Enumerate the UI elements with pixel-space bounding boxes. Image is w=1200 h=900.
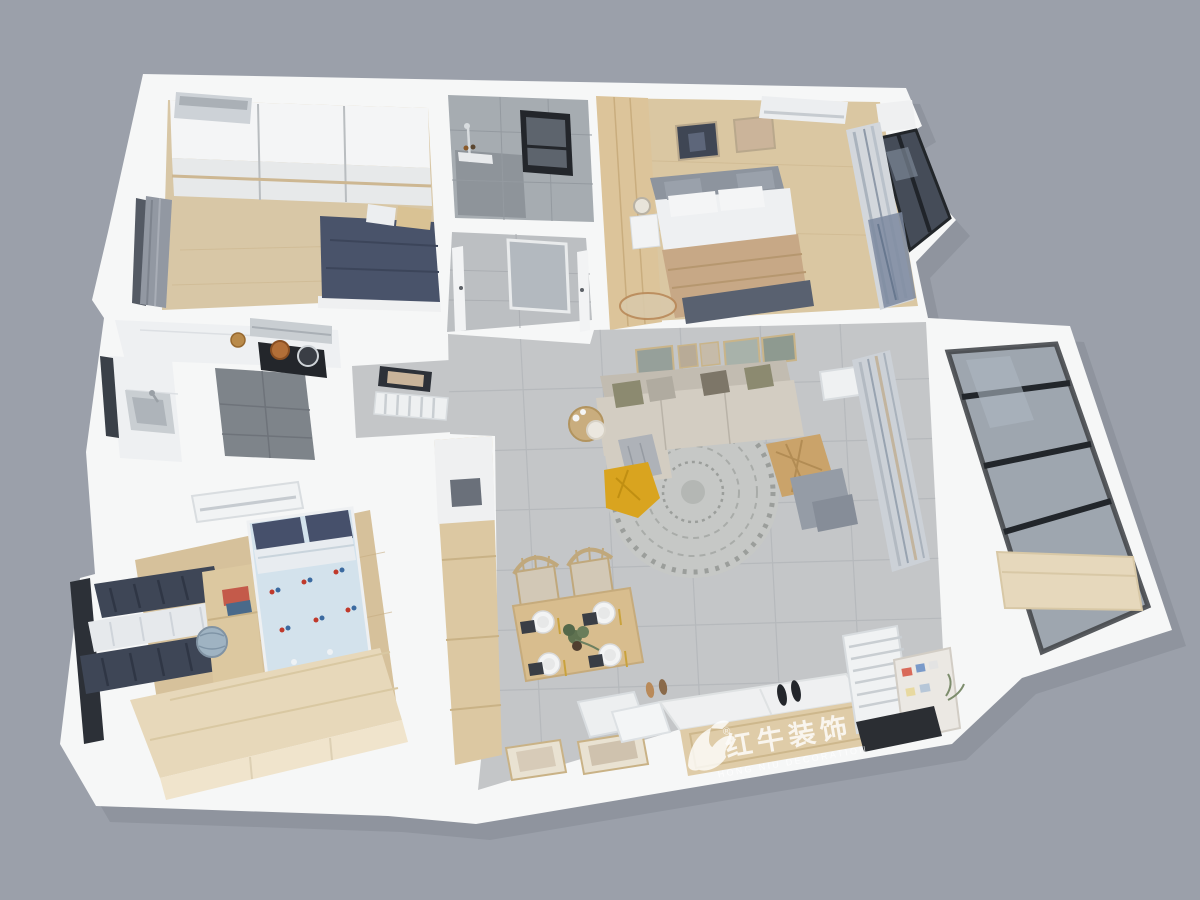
floorplan-render: ® 红牛装饰 HONG NIU DECORATION bbox=[0, 0, 1200, 900]
copper-pot-icon bbox=[271, 341, 289, 359]
wood-storage-cabinet bbox=[997, 552, 1142, 610]
dark-pot-icon bbox=[298, 346, 318, 366]
pillow bbox=[718, 186, 765, 211]
frosted-glass-door bbox=[508, 240, 569, 312]
counter-pot-icon bbox=[231, 333, 245, 347]
bedroom-rug bbox=[620, 293, 676, 319]
bathroom-window bbox=[520, 110, 573, 176]
pillow bbox=[396, 206, 432, 230]
napkin bbox=[588, 654, 604, 668]
napkin bbox=[528, 662, 544, 676]
sink bbox=[125, 390, 175, 434]
napkin bbox=[582, 612, 598, 626]
throw-pillow bbox=[612, 380, 644, 408]
throw-pillow bbox=[700, 370, 730, 396]
hallway bbox=[447, 232, 592, 332]
throw-pillow bbox=[744, 364, 774, 390]
throw-pillow bbox=[646, 376, 676, 402]
bathroom bbox=[448, 95, 594, 222]
corner-cabinet bbox=[876, 100, 916, 132]
floorplan-canvas: ® 红牛装饰 HONG NIU DECORATION bbox=[0, 0, 1200, 900]
secondary-bedroom bbox=[132, 92, 441, 312]
bed-navy-duvet bbox=[318, 204, 441, 312]
napkin bbox=[520, 620, 536, 634]
globe-icon bbox=[197, 627, 227, 657]
